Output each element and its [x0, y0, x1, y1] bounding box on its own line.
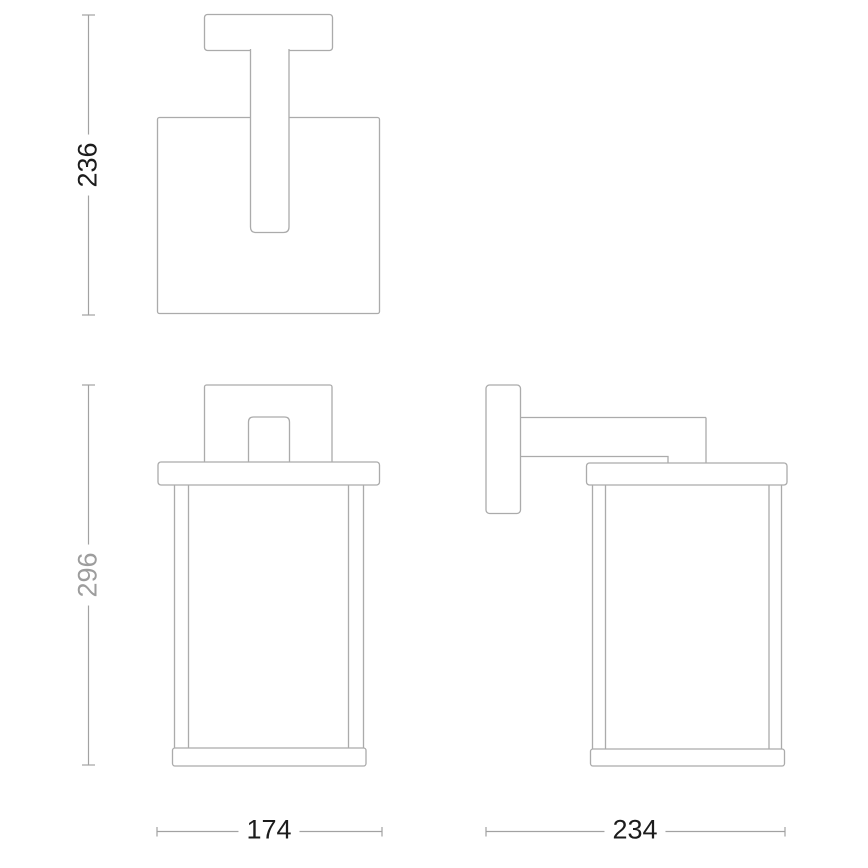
side-view-arm-bottom-edge: [521, 457, 669, 464]
top-view: [158, 15, 380, 314]
side-view-top-lid: [587, 463, 788, 485]
front-view-top-lid: [158, 462, 380, 485]
side-view-wall-plate: [486, 385, 521, 514]
dimension-label-top-height: 236: [74, 134, 103, 195]
technical-drawing-canvas: 236 296 174 234: [0, 0, 868, 868]
front-view-bottom-cap: [173, 748, 367, 766]
dimension-label-side-depth: 234: [604, 816, 665, 845]
dimension-lines: [82, 15, 785, 837]
side-view: [486, 385, 787, 766]
dimension-label-front-height: 296: [74, 544, 103, 605]
drawing-lines: [0, 0, 868, 868]
dimension-label-front-width: 174: [238, 816, 299, 845]
side-view-bottom-cap: [591, 749, 785, 766]
front-view: [158, 385, 380, 766]
top-view-mount-stem: [251, 49, 290, 233]
top-view-mount-bar: [205, 15, 333, 51]
front-view-cable-box: [249, 417, 290, 465]
